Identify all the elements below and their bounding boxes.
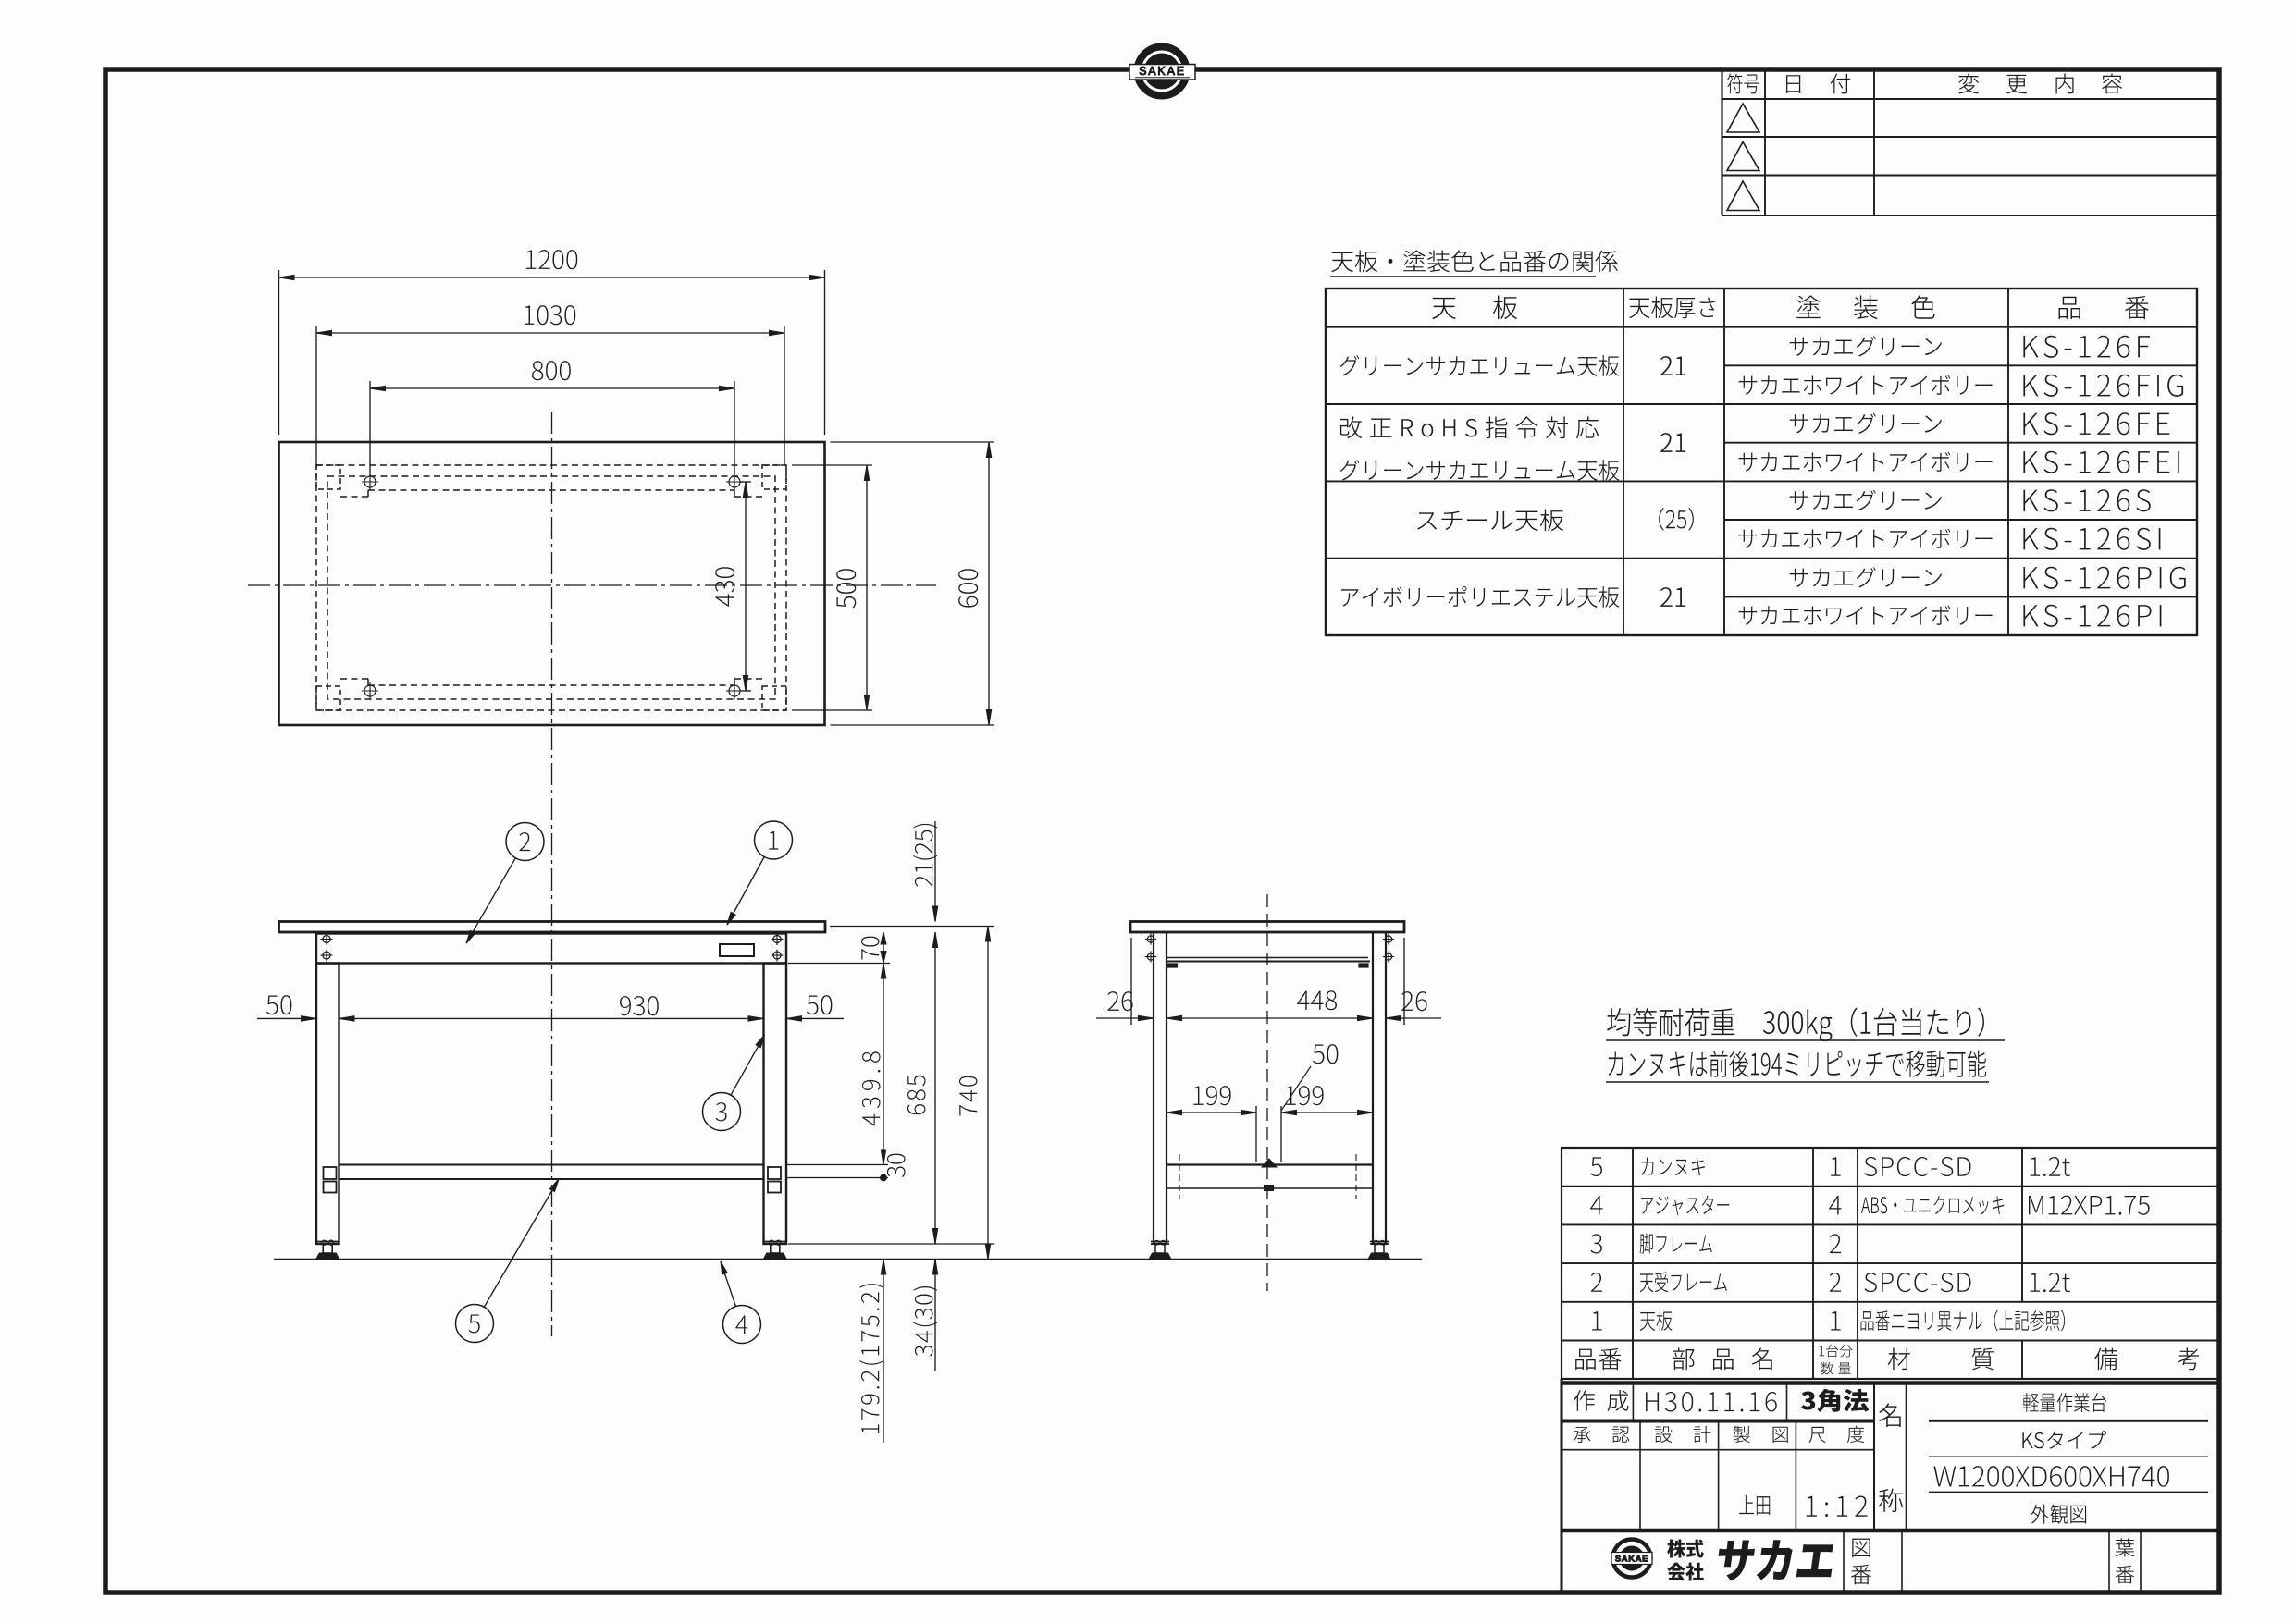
svg-text:SAKAE: SAKAE [1615, 1554, 1648, 1564]
svg-text:SAKAE: SAKAE [1139, 65, 1186, 78]
